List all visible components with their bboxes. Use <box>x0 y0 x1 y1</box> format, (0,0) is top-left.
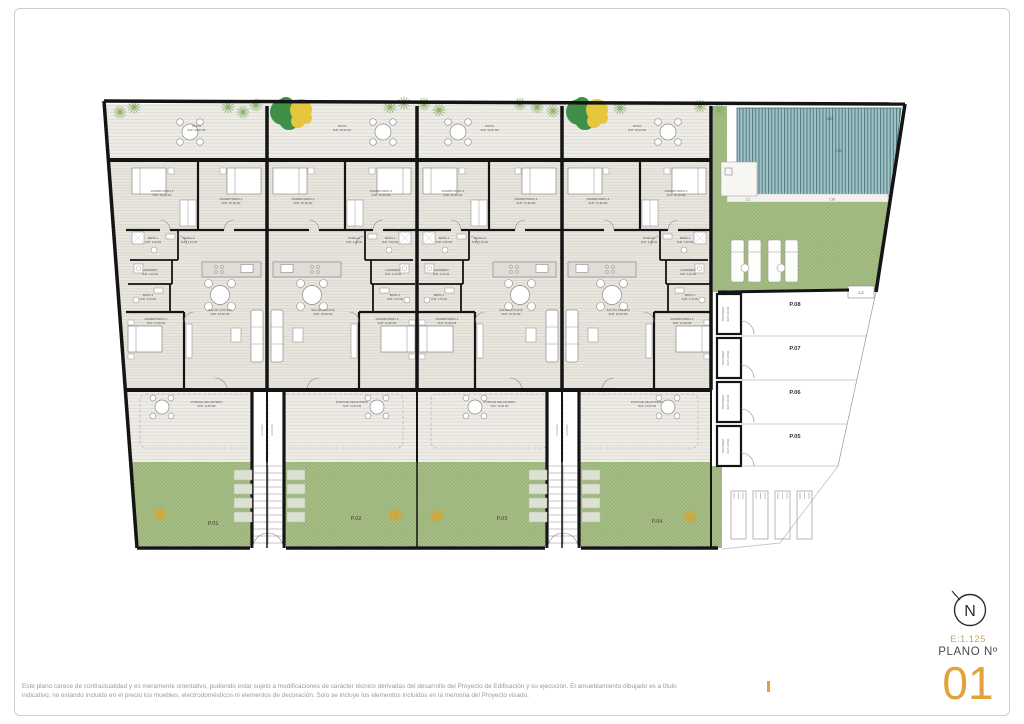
nightstand <box>419 354 425 359</box>
room-label: SUP: 24,60 M2 <box>314 312 333 316</box>
toilet <box>681 247 687 253</box>
room-label: SUP: 3,90 M2 <box>436 240 453 244</box>
stepping-pad <box>582 498 600 508</box>
chair <box>675 119 682 126</box>
pool-platform <box>721 162 757 196</box>
chair <box>674 413 680 419</box>
room-label: PORCHE DELANTERO <box>190 400 223 404</box>
side-green-strip <box>711 466 722 548</box>
storage-label: SUP: 2,50 M2 <box>727 394 730 410</box>
side-table <box>741 264 749 272</box>
door-arc <box>741 453 754 466</box>
room-label: PORCHE DELANTERO <box>336 400 369 404</box>
north-compass-icon: N <box>946 586 990 630</box>
chair <box>528 303 536 311</box>
room-label: LAVADERO <box>433 268 449 272</box>
pool-dimension: 7,20 <box>835 149 842 153</box>
room-label: PORCHE DELANTERO <box>631 400 664 404</box>
chair <box>177 139 184 146</box>
room-label: SUP: 10,90 M2 <box>294 201 313 205</box>
chair <box>655 139 662 146</box>
stepping-pad <box>582 470 600 480</box>
toilet <box>151 247 157 253</box>
door-arc <box>741 321 754 334</box>
floor-plan-drawing: 4,877,207,363,1TRASTEROSUP: 2,50 M2P.08T… <box>0 0 1024 724</box>
plano-number: 01 <box>916 660 1020 706</box>
room-label: SUP: 11,90 M2 <box>378 321 397 325</box>
chair <box>370 139 377 146</box>
room-label: SUP: 11,90 M2 <box>438 321 457 325</box>
room-label: SUP: 30,20 M2 <box>628 128 647 132</box>
plot-diagonal <box>838 292 876 466</box>
room-label: BAÑO 2 <box>685 292 696 297</box>
stepping-pad <box>234 484 252 494</box>
stepping-pad <box>234 498 252 508</box>
room-label: SUP: 11,90 M2 <box>673 321 692 325</box>
door-arc <box>741 365 754 378</box>
north-letter: N <box>964 603 976 620</box>
washer <box>400 264 409 273</box>
storage-label: TRASTERO <box>721 351 725 365</box>
room-label: SUP: 3,10 M2 <box>181 240 198 244</box>
stepping-pad <box>287 470 305 480</box>
toilet <box>404 297 410 303</box>
storage-label: SUP: 2,50 M2 <box>727 306 730 322</box>
room-label: SUP: 14,90 M2 <box>490 404 509 408</box>
room-label: SUP: 3,70 M2 <box>431 297 448 301</box>
room-label: PASILLO <box>348 236 361 240</box>
stepping-pad <box>287 498 305 508</box>
sink <box>675 288 684 293</box>
nightstand <box>515 168 521 174</box>
storage-label: TRASTERO <box>721 439 725 453</box>
room-label: SUP: 14,90 M2 <box>638 404 657 408</box>
sink <box>368 234 377 239</box>
sofa <box>271 310 283 362</box>
chair <box>177 119 184 126</box>
room-label: SUP: 2,10 M2 <box>385 272 402 276</box>
parking-parcel-label: P.06 <box>789 390 801 396</box>
table <box>155 400 169 414</box>
table <box>370 400 384 414</box>
table <box>468 400 482 414</box>
sink <box>166 234 175 239</box>
room-label: SUP: 10,30 M2 <box>444 193 463 197</box>
room-label: SUP: 11,90 M2 <box>147 321 166 325</box>
chair <box>505 280 513 288</box>
storage-label: SUP: 2,50 M2 <box>727 438 730 454</box>
chair <box>228 280 236 288</box>
chair <box>297 303 305 311</box>
chair <box>445 139 452 146</box>
plot-boundary <box>104 101 905 104</box>
nightstand <box>664 168 670 174</box>
chair <box>370 119 377 126</box>
storage-label: TRASTERO <box>721 307 725 321</box>
sun-lounger <box>748 240 761 282</box>
table <box>661 400 675 414</box>
sofa <box>566 310 578 362</box>
toilet <box>699 297 705 303</box>
parking-parcel-label: P.07 <box>789 346 800 352</box>
room-label: SUP: 2,10 M2 <box>142 272 159 276</box>
nightstand <box>459 168 465 174</box>
stepping-pad <box>582 512 600 522</box>
parking-area: TRASTEROSUP: 2,50 M2P.08TRASTEROSUP: 2,5… <box>717 286 876 549</box>
plot-boundary <box>718 290 849 292</box>
garden-parcel-label: P.01 <box>208 521 219 527</box>
chair <box>597 303 605 311</box>
room-label: BAÑO 2 <box>143 292 154 297</box>
bed <box>568 168 602 194</box>
disclaimer-line-2: indicativo; no estando incluido en el pr… <box>22 692 760 701</box>
room-label: SUP: 10,30 M2 <box>372 193 391 197</box>
room-label: SUP: 3,70 M2 <box>682 297 699 301</box>
toilet <box>133 297 139 303</box>
bed <box>273 168 307 194</box>
sink <box>445 288 454 293</box>
room-label: SUP: 3,10 M2 <box>346 240 363 244</box>
nightstand <box>308 168 314 174</box>
room-label: SUP: 24,60 M2 <box>502 312 521 316</box>
front-garden-band <box>131 462 711 546</box>
bed <box>676 326 710 352</box>
door-arc <box>741 409 754 422</box>
room-label: SUP: 10,30 M2 <box>153 193 172 197</box>
chair <box>445 119 452 126</box>
room-label: BAÑO 2 <box>434 292 445 297</box>
tv-unit <box>646 324 652 358</box>
tree-canopy <box>300 112 312 124</box>
sofa <box>546 310 558 362</box>
toilet <box>442 247 448 253</box>
toilet <box>424 297 430 303</box>
table <box>211 286 230 305</box>
room-label: PATIO <box>192 124 201 128</box>
room-label: SUP: 30,20 M2 <box>187 128 206 132</box>
chair <box>481 413 487 419</box>
room-label: BAÑO 1 <box>680 235 691 240</box>
chair <box>390 139 397 146</box>
deck-dimension: 7,36 <box>829 198 835 202</box>
nightstand <box>168 168 174 174</box>
stair-label: ACCESO <box>565 425 569 436</box>
table <box>303 286 322 305</box>
room-label: PATIO <box>485 124 494 128</box>
tree-canopy <box>596 112 608 124</box>
side-table <box>777 264 785 272</box>
room-label: BAÑO 1 <box>148 235 159 240</box>
toilet <box>386 247 392 253</box>
table <box>603 286 622 305</box>
nightstand <box>369 168 375 174</box>
stair-label: ACCESO <box>260 425 264 436</box>
scale-label: E:1.125 <box>916 634 1020 645</box>
nightstand <box>409 320 415 325</box>
sun-lounger <box>768 240 781 282</box>
room-label: LAVADERO <box>385 268 401 272</box>
parking-parcel-label: P.05 <box>789 434 801 440</box>
room-label: BAÑO 1 <box>385 235 396 240</box>
stepping-pad <box>234 470 252 480</box>
room-label: SUP: 3,70 M2 <box>387 297 404 301</box>
room-label: SUP: 3,10 M2 <box>641 240 658 244</box>
chair <box>168 395 174 401</box>
deck-dimension: 3,1 <box>746 198 751 202</box>
stepping-pad <box>529 512 547 522</box>
room-label: PATIO <box>338 124 347 128</box>
room-label: SUP: 3,90 M2 <box>145 240 162 244</box>
room-label: PATIO <box>633 124 642 128</box>
room-label: SUP: 3,90 M2 <box>677 240 694 244</box>
stepping-pad <box>529 470 547 480</box>
nightstand <box>419 320 425 325</box>
nightstand <box>128 320 134 325</box>
chair <box>620 280 628 288</box>
garden-parcel-label: P.04 <box>652 519 664 525</box>
stepping-pad <box>529 484 547 494</box>
room-label: SUP: 10,90 M2 <box>589 201 608 205</box>
room-label: SUP: 10,30 M2 <box>667 193 686 197</box>
chair <box>150 395 156 401</box>
garden-parcel-label: P.02 <box>351 516 362 522</box>
kitchen-sink <box>536 265 548 273</box>
chair <box>528 280 536 288</box>
room-label: SUP: 14,90 M2 <box>343 404 362 408</box>
storage-label: SUP: 2,50 M2 <box>727 350 730 366</box>
disclaimer: Este plano carece de contractualidad y e… <box>22 683 760 701</box>
nightstand <box>704 320 710 325</box>
dimension-label: 1,2 <box>858 290 864 295</box>
bed <box>128 326 162 352</box>
room-label: SUP: 3,10 M2 <box>472 240 489 244</box>
coffee-table <box>526 328 536 342</box>
pool-dimension: 4,87 <box>827 117 834 121</box>
coffee-table <box>588 328 598 342</box>
room-label: SUP: 2,10 M2 <box>433 272 450 276</box>
room-label: SUP: 30,20 M2 <box>333 128 352 132</box>
stepping-pad <box>529 498 547 508</box>
stair-label: ACCESO <box>555 425 559 436</box>
kitchen-sink <box>281 265 293 273</box>
bed <box>419 326 453 352</box>
room-label: BAÑO 1 <box>439 235 450 240</box>
chair <box>463 395 469 401</box>
chair <box>674 395 680 401</box>
coffee-table <box>231 328 241 342</box>
room-label: SUP: 3,70 M2 <box>140 297 157 301</box>
washer <box>695 264 704 273</box>
table <box>660 124 676 140</box>
apron-boundary <box>722 466 838 549</box>
pool <box>737 108 901 196</box>
room-label: SUP: 24,60 M2 <box>609 312 628 316</box>
room-label: SUP: 10,90 M2 <box>517 201 536 205</box>
chair <box>365 413 371 419</box>
room-label: PORCHE DELANTERO <box>483 400 516 404</box>
sofa <box>251 310 263 362</box>
chair <box>465 119 472 126</box>
room-label: SUP: 3,90 M2 <box>382 240 399 244</box>
chair <box>390 119 397 126</box>
storage-label: TRASTERO <box>721 395 725 409</box>
coffee-table <box>293 328 303 342</box>
table <box>450 124 466 140</box>
chair <box>383 395 389 401</box>
room-label: SUP: 14,90 M2 <box>197 404 216 408</box>
table <box>375 124 391 140</box>
room-label: PASILLO <box>183 236 196 240</box>
nightstand <box>603 168 609 174</box>
parking-parcel-label: P.08 <box>789 302 801 308</box>
chair <box>656 413 662 419</box>
bed <box>522 168 556 194</box>
stepping-pad <box>287 512 305 522</box>
room-label: LAVADERO <box>680 268 696 272</box>
room-label: SUP: 2,10 M2 <box>680 272 697 276</box>
disclaimer-line-1: Este plano carece de contractualidad y e… <box>22 683 760 692</box>
stepping-pad <box>582 484 600 494</box>
sink <box>154 288 163 293</box>
sheet: 4,877,207,363,1TRASTEROSUP: 2,50 M2P.08T… <box>0 0 1024 724</box>
bed <box>381 326 415 352</box>
chair <box>597 280 605 288</box>
sun-lounger <box>785 240 798 282</box>
tv-unit <box>351 324 357 358</box>
chair <box>675 139 682 146</box>
kitchen-sink <box>576 265 588 273</box>
nightstand <box>409 354 415 359</box>
sink <box>380 288 389 293</box>
room-label: PASILLO <box>474 236 487 240</box>
nightstand <box>128 354 134 359</box>
chair <box>465 139 472 146</box>
stepping-pad <box>287 484 305 494</box>
chair <box>297 280 305 288</box>
bed <box>227 168 261 194</box>
tv-unit <box>477 324 483 358</box>
chair <box>383 413 389 419</box>
chair <box>150 413 156 419</box>
chair <box>320 280 328 288</box>
stair-label: ACCESO <box>270 425 274 436</box>
room-label: SUP: 24,60 M2 <box>211 312 230 316</box>
room-label: LAVADERO <box>142 268 158 272</box>
table <box>511 286 530 305</box>
room-label: SUP: 10,90 M2 <box>222 201 241 205</box>
chair <box>205 280 213 288</box>
nightstand <box>220 168 226 174</box>
chair <box>168 413 174 419</box>
stepping-pad <box>234 512 252 522</box>
sink <box>663 234 672 239</box>
room-label: PASILLO <box>643 236 656 240</box>
tv-unit <box>186 324 192 358</box>
garden-parcel-label: P.03 <box>497 516 508 522</box>
kitchen-sink <box>241 265 253 273</box>
accent-tick <box>767 681 770 692</box>
room-label: BAÑO 2 <box>390 292 401 297</box>
title-block: N E:1.125 PLANO Nº 01 <box>916 586 1020 706</box>
pool-area: 4,877,207,363,1 <box>717 108 901 290</box>
chair <box>463 413 469 419</box>
chair <box>655 119 662 126</box>
sun-lounger <box>731 240 744 282</box>
sink <box>457 234 466 239</box>
room-label: SUP: 30,20 M2 <box>480 128 499 132</box>
nightstand <box>704 354 710 359</box>
chair <box>197 139 204 146</box>
